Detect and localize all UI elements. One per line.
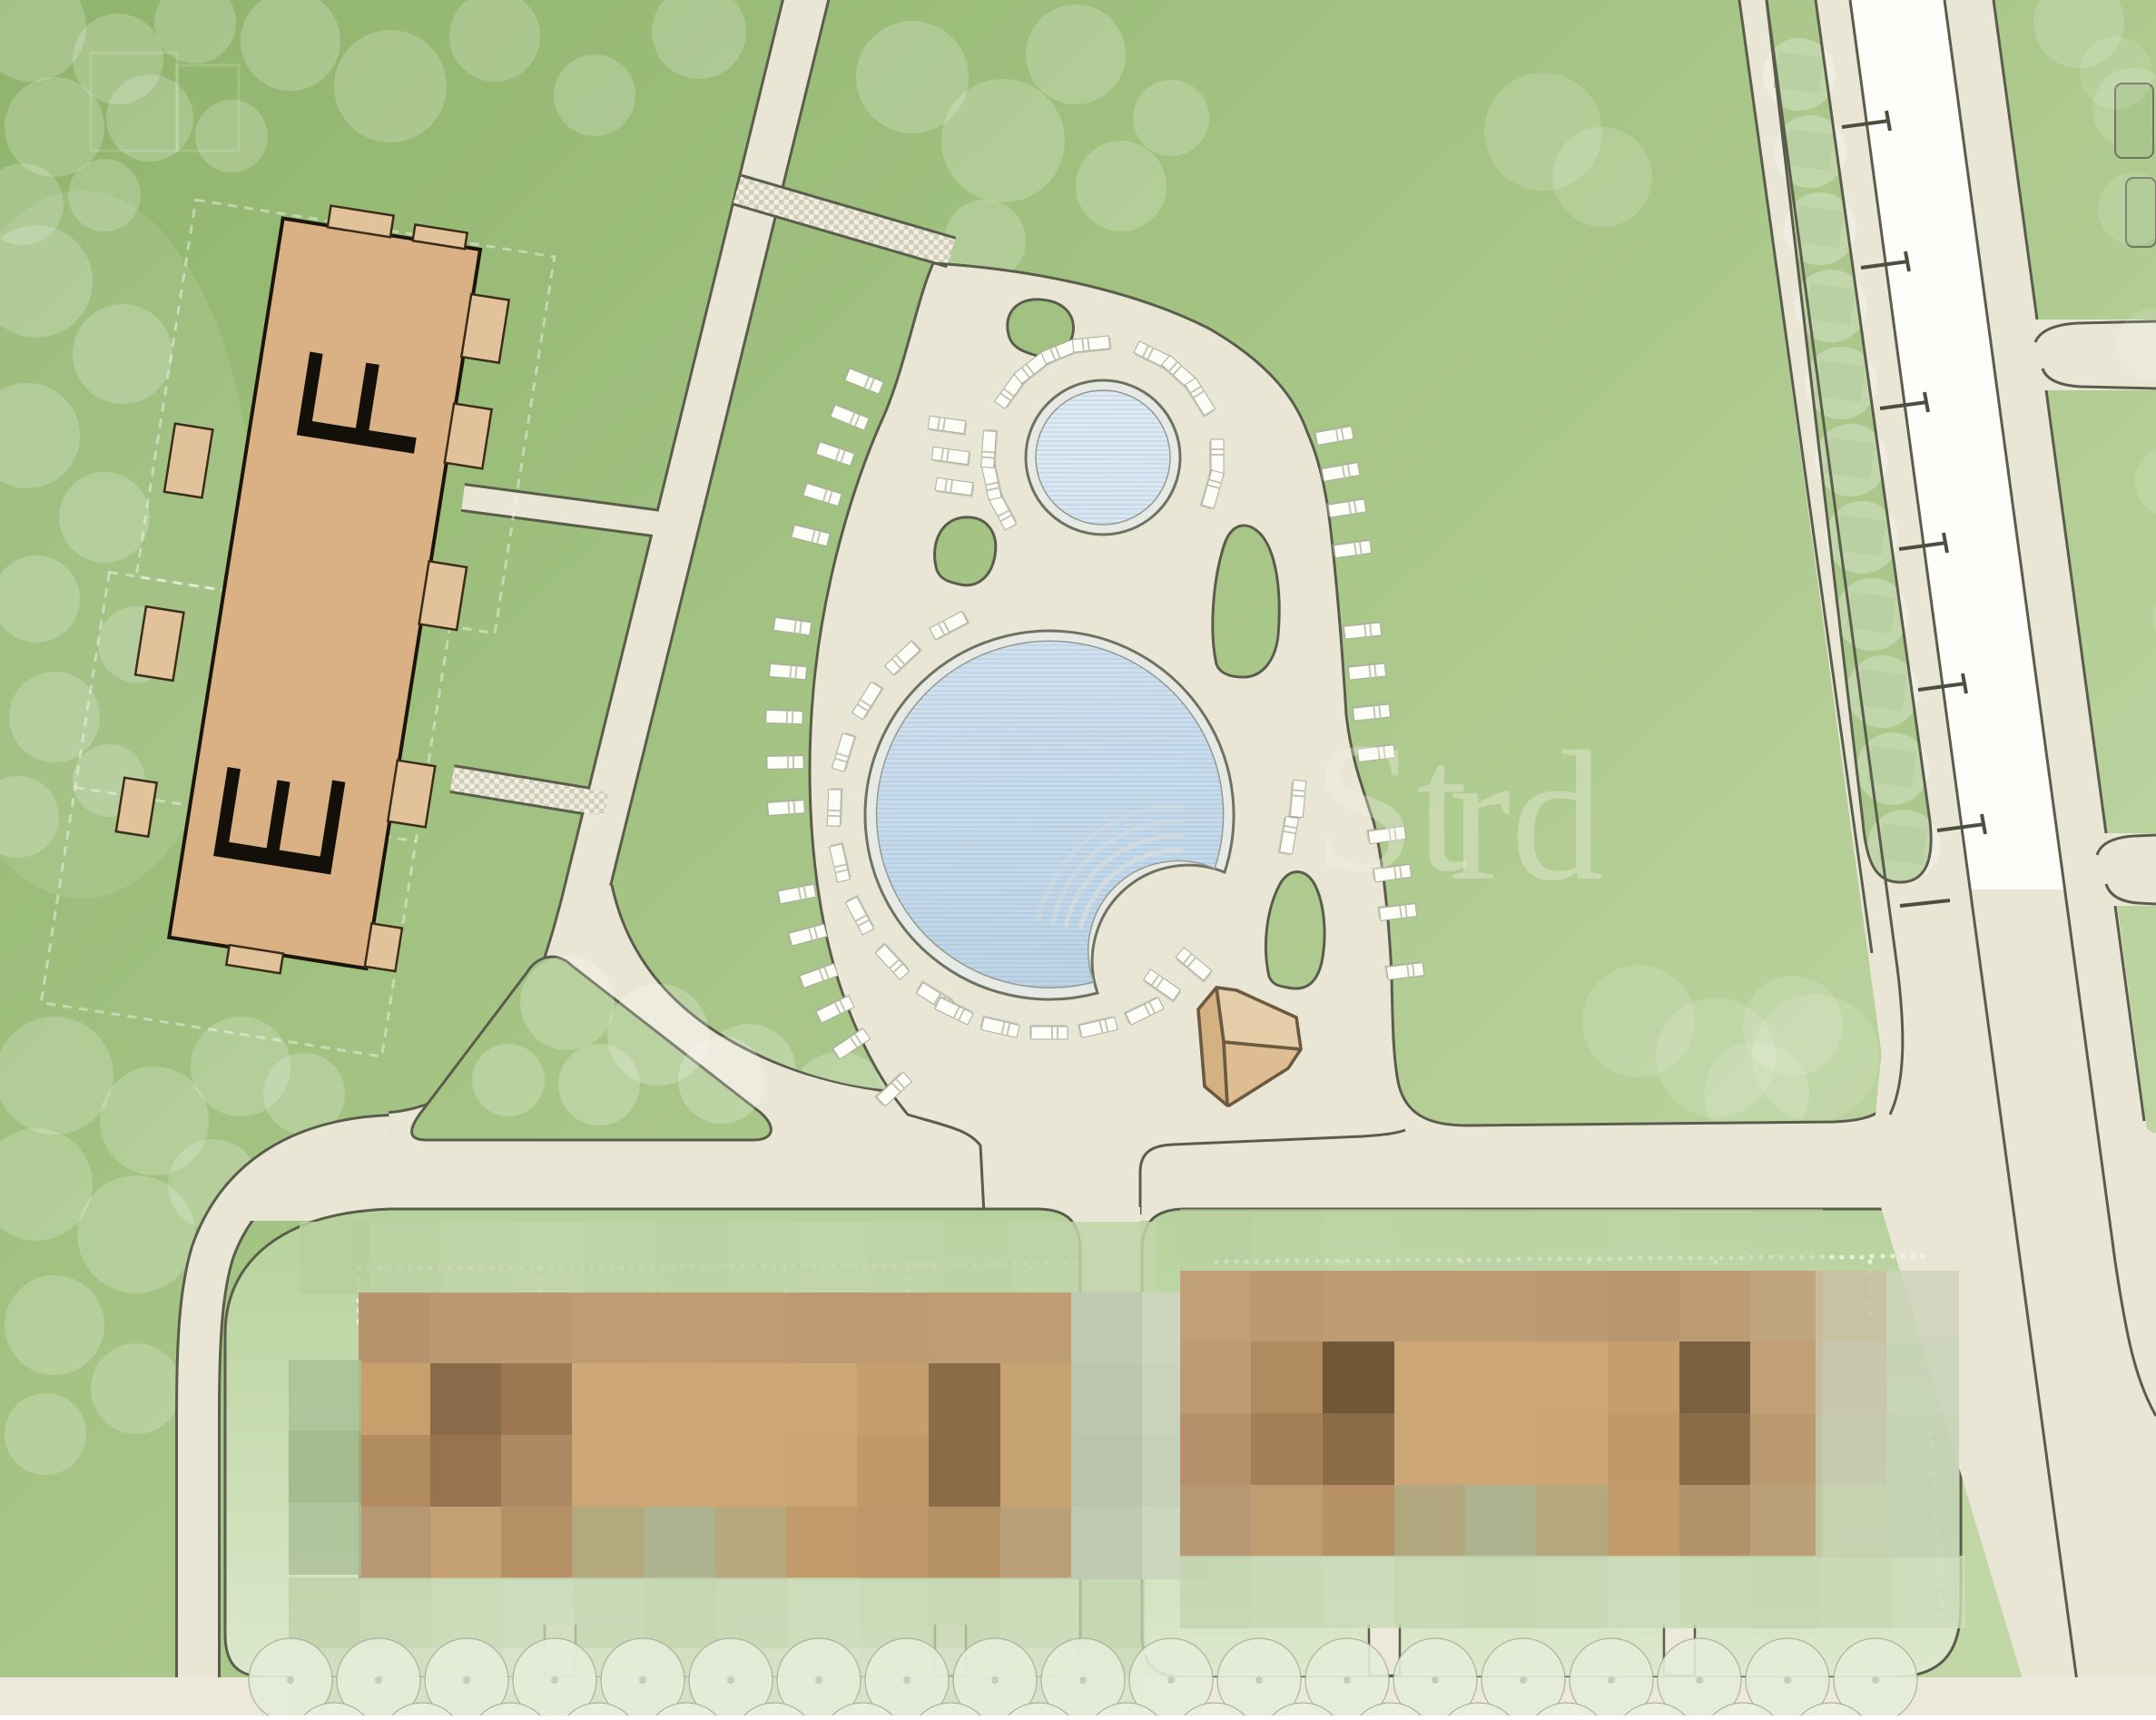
svg-text:rd: rd [1449, 713, 1604, 919]
svg-text:St: St [1313, 704, 1468, 910]
